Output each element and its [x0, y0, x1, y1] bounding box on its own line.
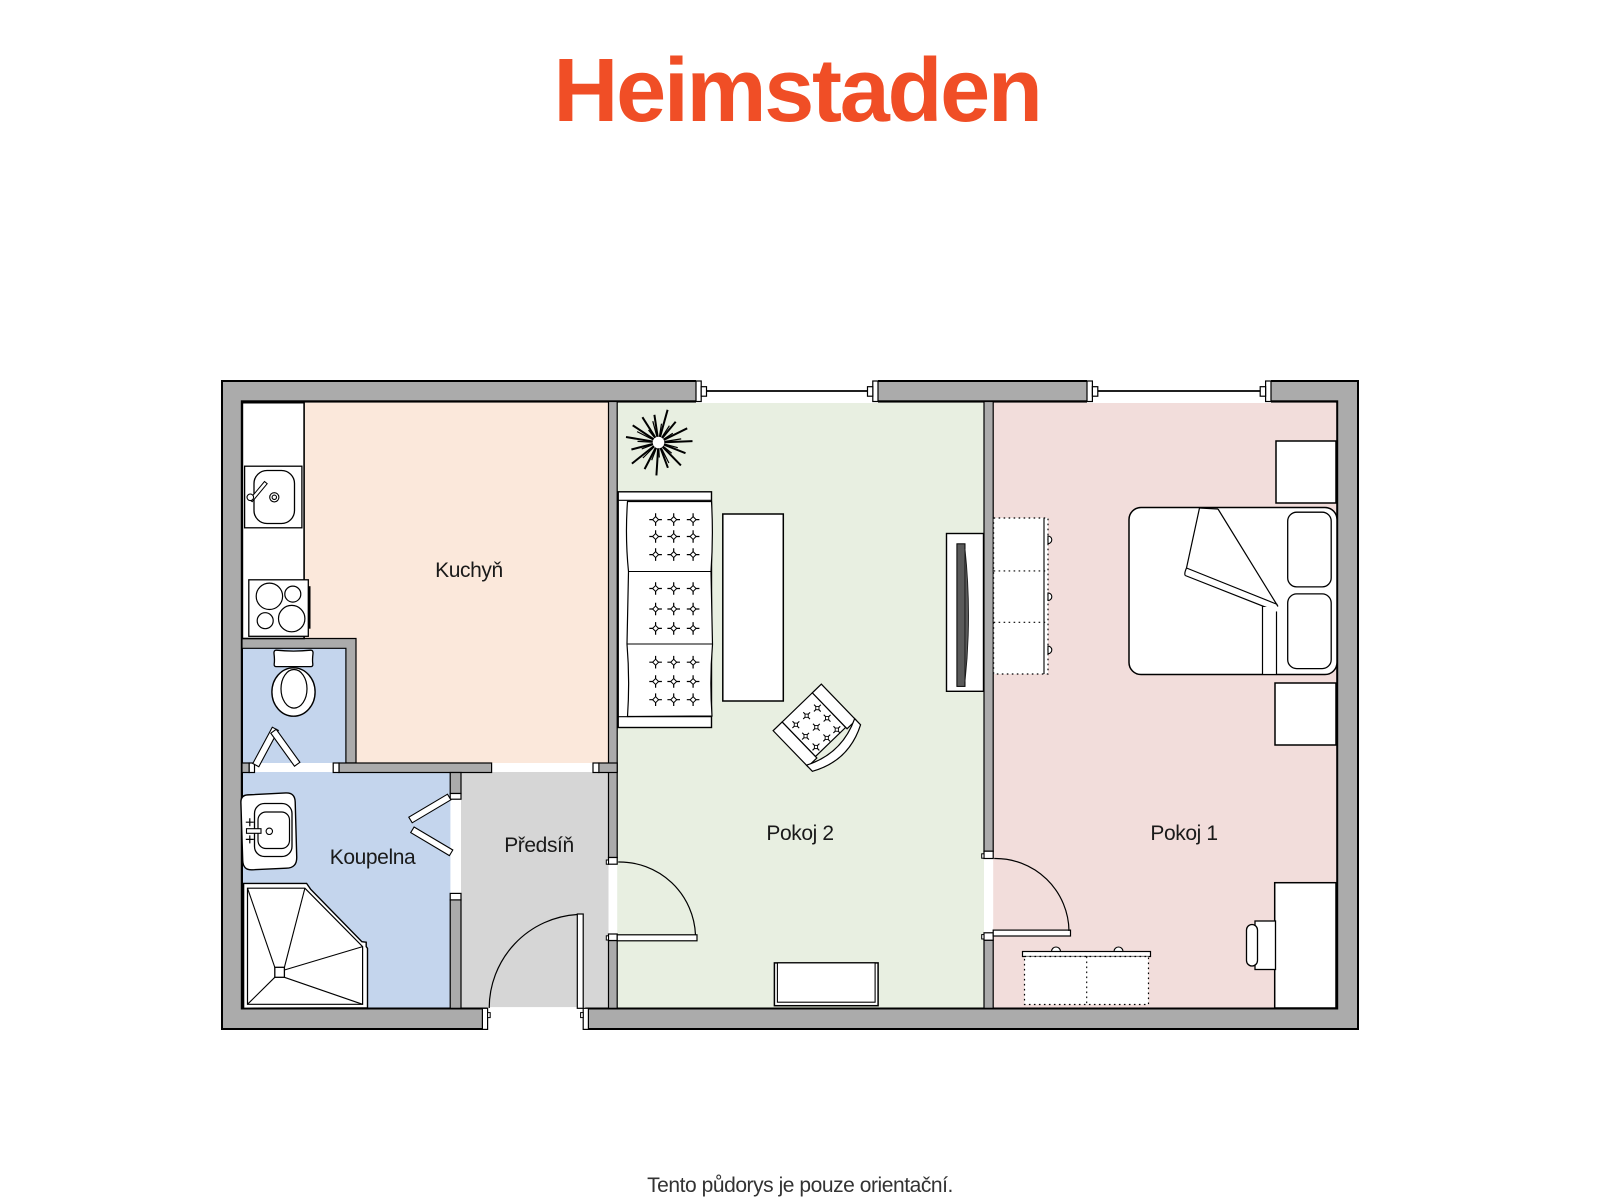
svg-text:Pokoj 1: Pokoj 1	[1150, 822, 1217, 845]
svg-text:Heimstaden: Heimstaden	[553, 41, 1040, 141]
svg-text:Tento půdorys je pouze orienta: Tento půdorys je pouze orientační.	[647, 1174, 953, 1197]
svg-text:Pokoj 2: Pokoj 2	[766, 822, 833, 845]
svg-text:Kuchyň: Kuchyň	[435, 559, 503, 582]
svg-text:Koupelna: Koupelna	[330, 846, 416, 869]
svg-text:Předsíň: Předsíň	[504, 834, 574, 857]
